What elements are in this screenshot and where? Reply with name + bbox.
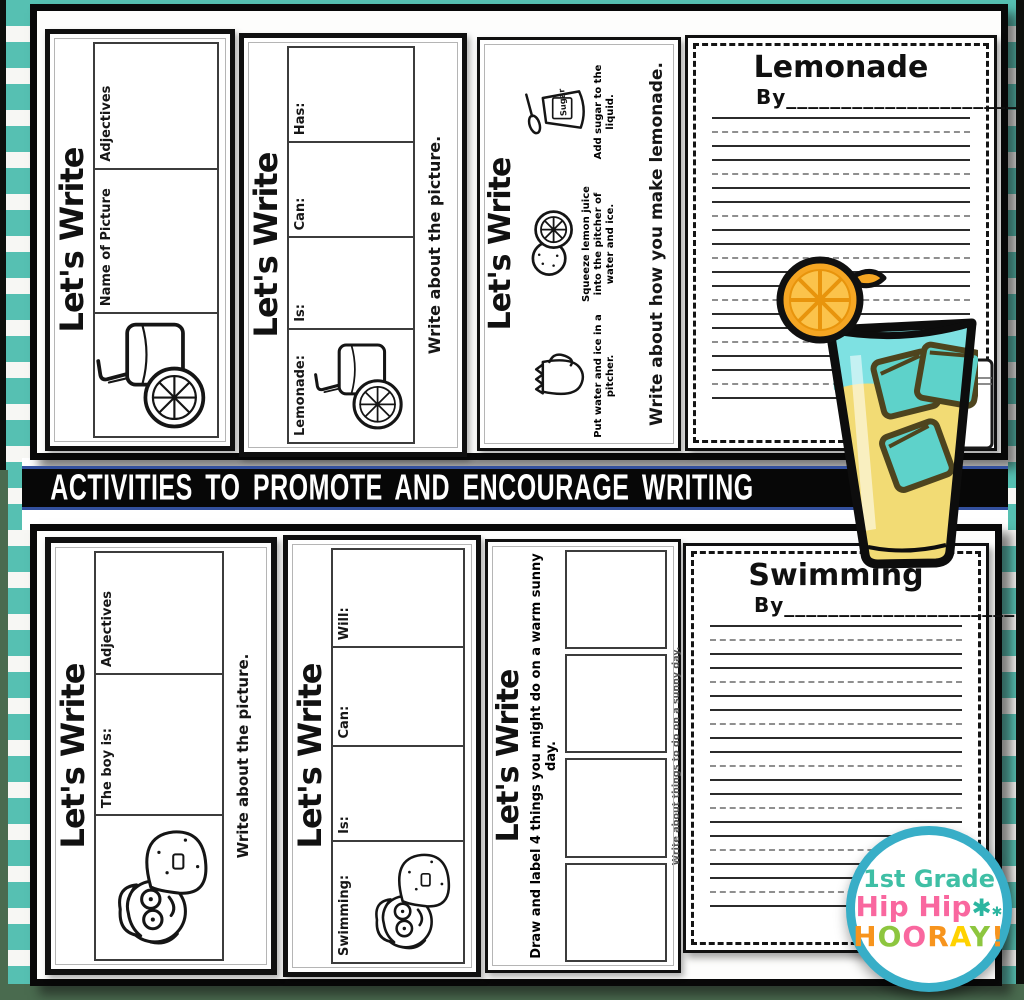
logo-line-grade: 1st Grade <box>863 867 995 892</box>
card-title: Let's Write <box>292 546 329 966</box>
card-title: Let's Write <box>492 548 527 964</box>
worksheet-card-make-lemonade: Let's Write Put water and ice in a pitch… <box>477 37 681 451</box>
box-label: The boy is: <box>96 675 115 814</box>
step-sugar: Sugar Add sugar to the liquid. <box>523 46 635 178</box>
box-label: Can: <box>289 143 308 236</box>
hooray-letter: R <box>927 920 950 953</box>
paper-byline: By_____________________ <box>754 593 962 617</box>
draw-box <box>565 863 667 962</box>
banner-text: ACTIVITIES TO PROMOTE AND ENCOURAGE WRIT… <box>22 467 782 509</box>
photo-edge-bottom <box>0 984 1024 1000</box>
hooray-letter: ! <box>991 920 1005 953</box>
hooray-letter: O <box>902 920 927 953</box>
card-caption: Write about the picture. <box>425 44 444 446</box>
hooray-letter: H <box>853 920 877 953</box>
sugar-label: Sugar <box>556 87 568 116</box>
card-boxes: Lemonade: Is: Can: Has: <box>287 46 415 444</box>
lemonade-glass-illustration <box>766 256 978 574</box>
lemonade-glass-icon <box>95 316 213 434</box>
step-caption: Squeeze lemon juice into the pitcher of … <box>581 178 617 310</box>
seller-logo-badge: 1st Grade Hip Hip✱✱ HOORAY! <box>846 826 1012 992</box>
card-boxes: Swimming: Is: Can: Will: <box>331 548 465 964</box>
box-label: Is: <box>289 238 308 327</box>
can-box: Can: <box>289 143 413 238</box>
the-boy-is-box: The boy is: <box>96 675 222 816</box>
card-caption: Write about the picture. <box>234 549 252 963</box>
logo-line-hooray: HOORAY! <box>853 922 1005 951</box>
draw-box <box>565 654 667 753</box>
hooray-letter: O <box>878 920 903 953</box>
picture-box: Swimming: <box>333 842 463 962</box>
box-label: Lemonade: <box>289 330 308 442</box>
asterisk-icon: ✱ <box>971 894 991 922</box>
asterisk-icon: ✱ <box>992 905 1003 920</box>
draw-box <box>565 550 667 649</box>
picture-box: Lemonade: <box>289 330 413 442</box>
step-caption: Add sugar to the liquid. <box>593 46 617 178</box>
adjectives-box: Adjectives <box>96 553 222 675</box>
picture-box <box>96 816 222 959</box>
box-label: Can: <box>333 648 352 744</box>
worksheet-card-name-adjectives: Let's Write Name of Picture Adjectives <box>45 29 235 451</box>
card-title: Let's Write <box>54 40 91 440</box>
paper-title: Lemonade <box>712 50 970 85</box>
will-box: Will: <box>333 550 463 648</box>
swimming-boy-icon <box>365 843 459 961</box>
logo-line-hiphip: Hip Hip✱✱ <box>856 892 1003 921</box>
card-boxes: Name of Picture Adjectives <box>93 42 219 438</box>
card-title: Let's Write <box>55 549 92 963</box>
hooray-letter: Y <box>970 920 991 953</box>
photo-edge-left <box>0 470 8 1000</box>
step-caption: Put water and ice in a pitcher. <box>593 310 617 442</box>
sugar-bag-icon: Sugar <box>523 82 589 142</box>
box-label: Will: <box>333 550 352 646</box>
draw-boxes <box>565 550 667 962</box>
box-label: Is: <box>333 747 352 840</box>
can-box: Can: <box>333 648 463 746</box>
is-box: Is: <box>289 238 413 329</box>
pitcher-icon <box>523 345 589 407</box>
card-title: Let's Write <box>248 44 285 446</box>
worksheet-card-boy-adjectives: Let's Write The boy is: Adjectives Write… <box>45 537 277 975</box>
paper-byline: By_____________________ <box>756 85 970 109</box>
worksheet-card-lemonade-is-can-has: Let's Write Lemonade: Is: Can: Has: Writ… <box>239 33 467 457</box>
step-lemon: Squeeze lemon juice into the pitcher of … <box>523 178 635 310</box>
worksheet-card-sunny-day: Let's Write Draw and label 4 things you … <box>485 539 681 973</box>
hooray-letter: A <box>950 920 970 953</box>
worksheet-card-swimming-is-can-will: Let's Write Swimming: Is: Can: Will: <box>283 535 481 977</box>
adjectives-box: Adjectives <box>95 44 217 170</box>
is-box: Is: <box>333 747 463 842</box>
has-box: Has: <box>289 48 413 143</box>
box-label: Swimming: <box>333 842 352 962</box>
box-label: Adjectives <box>95 44 114 168</box>
hip-hip-text: Hip Hip <box>856 890 972 923</box>
lemon-icon <box>523 208 577 280</box>
steps-row: Put water and ice in a pitcher. Squeeze … <box>523 46 635 442</box>
picture-box <box>95 314 217 436</box>
card-prompt: Draw and label 4 things you might do on … <box>529 548 559 964</box>
swimming-boy-icon <box>106 817 218 959</box>
box-label: Adjectives <box>96 553 115 673</box>
name-of-picture-box: Name of Picture <box>95 170 217 315</box>
box-label: Name of Picture <box>95 170 114 313</box>
step-pitcher: Put water and ice in a pitcher. <box>523 310 635 442</box>
card-caption: Write about things to do on a sunny day. <box>671 548 682 964</box>
box-label: Has: <box>289 48 308 141</box>
card-boxes: The boy is: Adjectives <box>94 551 224 961</box>
card-title: Let's Write <box>484 46 519 442</box>
card-caption: Write about how you make lemonade. <box>647 46 667 442</box>
lemonade-glass-icon <box>313 338 409 434</box>
draw-box <box>565 759 667 858</box>
